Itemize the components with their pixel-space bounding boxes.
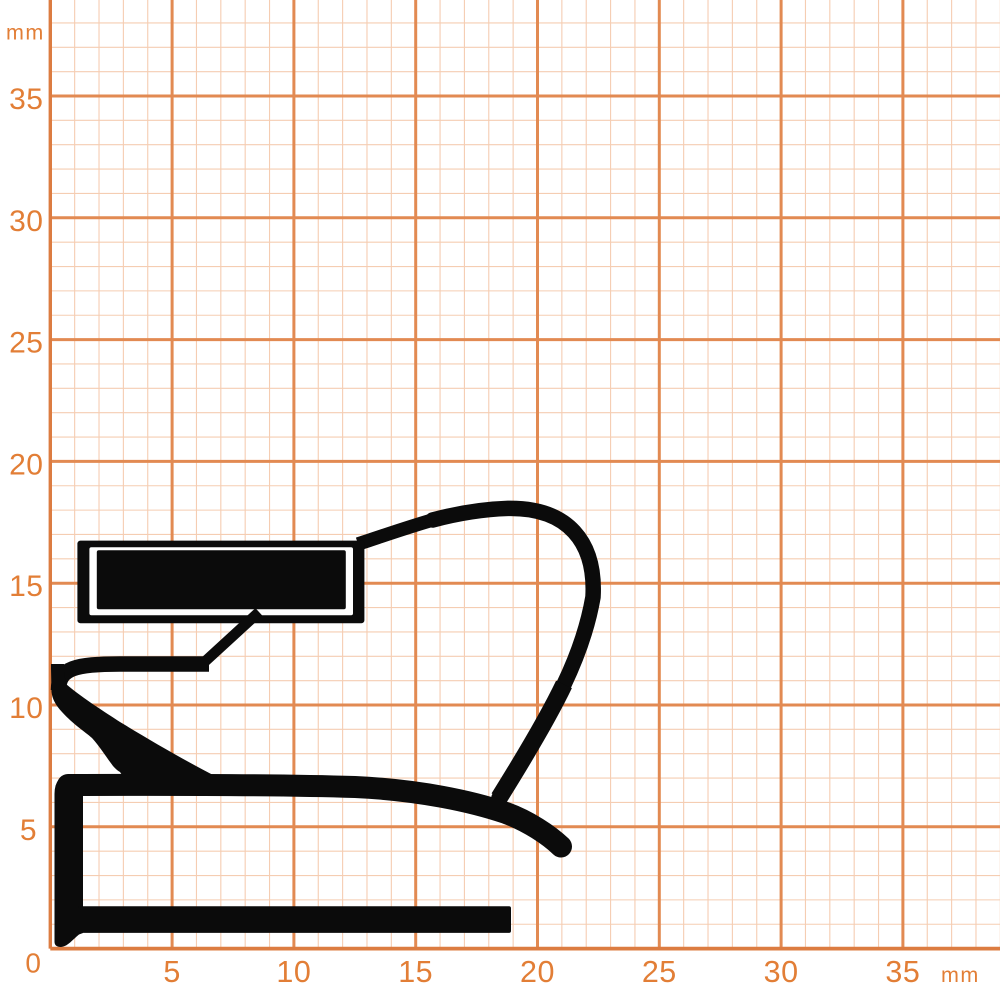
svg-text:mm: mm xyxy=(941,963,980,987)
svg-text:10: 10 xyxy=(9,692,43,725)
svg-text:0: 0 xyxy=(25,948,41,979)
svg-text:5: 5 xyxy=(20,814,37,847)
svg-text:25: 25 xyxy=(9,327,43,360)
svg-text:5: 5 xyxy=(163,955,180,989)
svg-text:30: 30 xyxy=(764,955,799,989)
svg-text:20: 20 xyxy=(520,955,555,989)
svg-text:30: 30 xyxy=(9,205,43,238)
svg-text:35: 35 xyxy=(9,83,43,116)
svg-text:15: 15 xyxy=(9,570,43,603)
svg-text:mm: mm xyxy=(6,21,45,45)
svg-text:10: 10 xyxy=(276,955,311,989)
svg-text:15: 15 xyxy=(398,955,433,989)
svg-text:20: 20 xyxy=(9,448,43,481)
svg-text:35: 35 xyxy=(885,955,920,989)
svg-text:25: 25 xyxy=(642,955,677,989)
